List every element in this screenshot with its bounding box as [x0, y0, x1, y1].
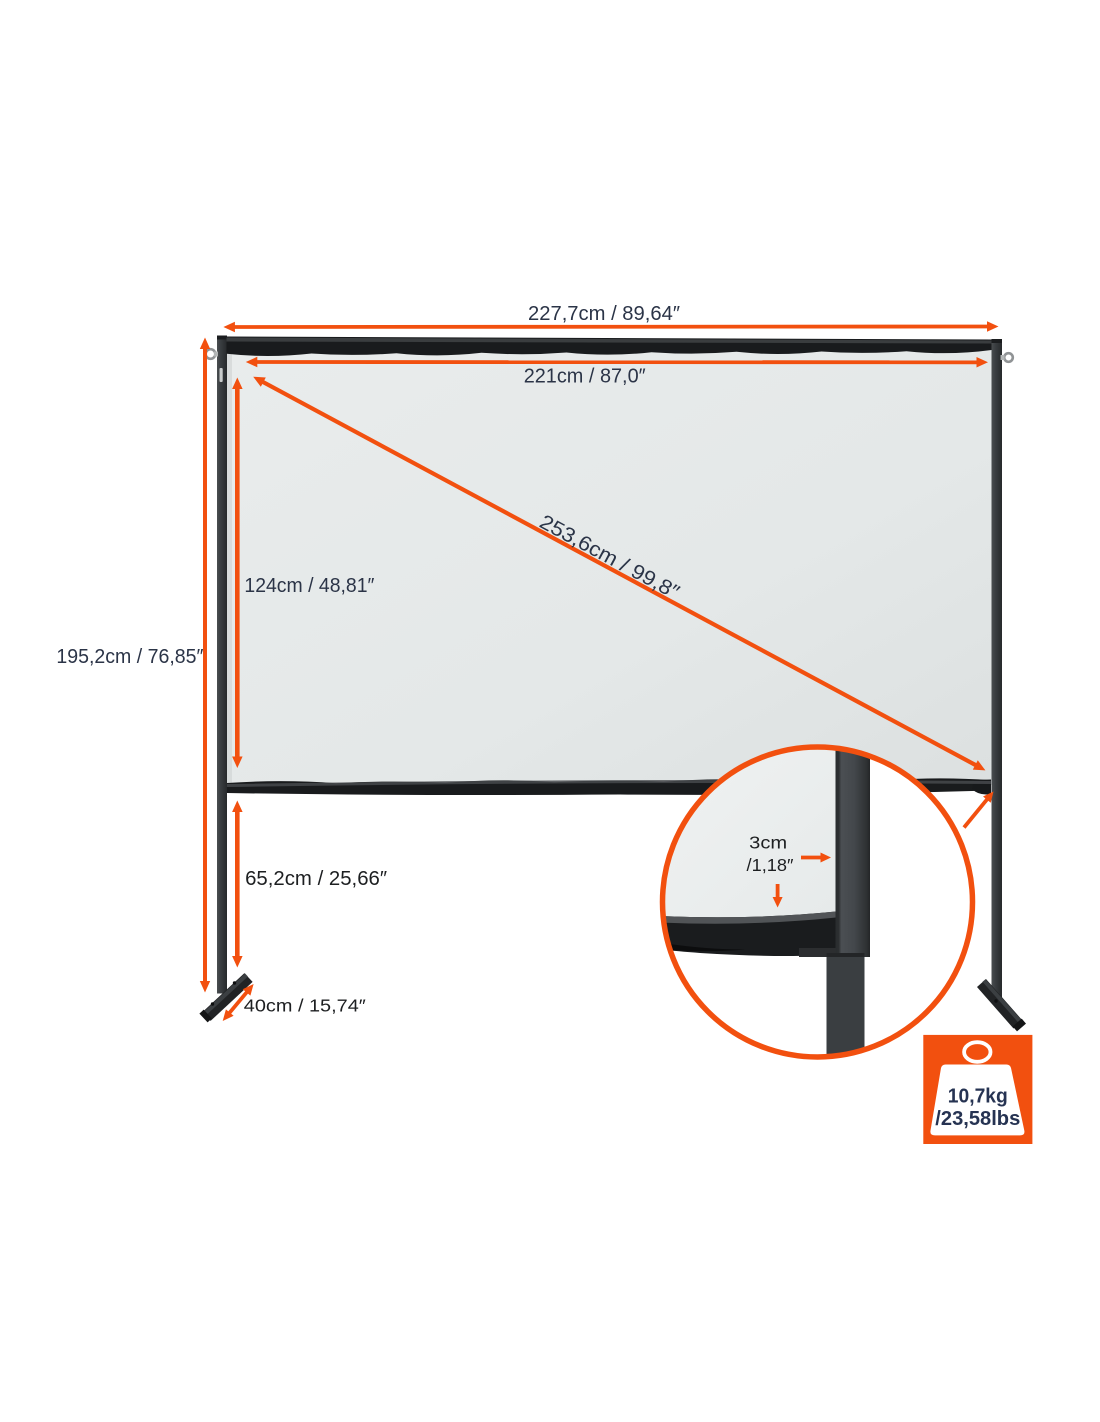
svg-text:10,7kg: 10,7kg	[948, 1085, 1008, 1108]
svg-text:124cm / 48,81″: 124cm / 48,81″	[244, 574, 374, 597]
svg-text:221cm / 87,0″: 221cm / 87,0″	[524, 365, 646, 388]
svg-text:195,2cm / 76,85″: 195,2cm / 76,85″	[56, 645, 203, 668]
svg-text:3cm: 3cm	[749, 833, 787, 853]
svg-text:40cm / 15,74″: 40cm / 15,74″	[244, 996, 366, 1016]
svg-text:65,2cm / 25,66″: 65,2cm / 25,66″	[245, 867, 387, 890]
svg-text:/23,58lbs: /23,58lbs	[935, 1107, 1020, 1130]
svg-text:227,7cm / 89,64″: 227,7cm / 89,64″	[528, 302, 680, 325]
svg-text:/1,18″: /1,18″	[747, 855, 794, 875]
